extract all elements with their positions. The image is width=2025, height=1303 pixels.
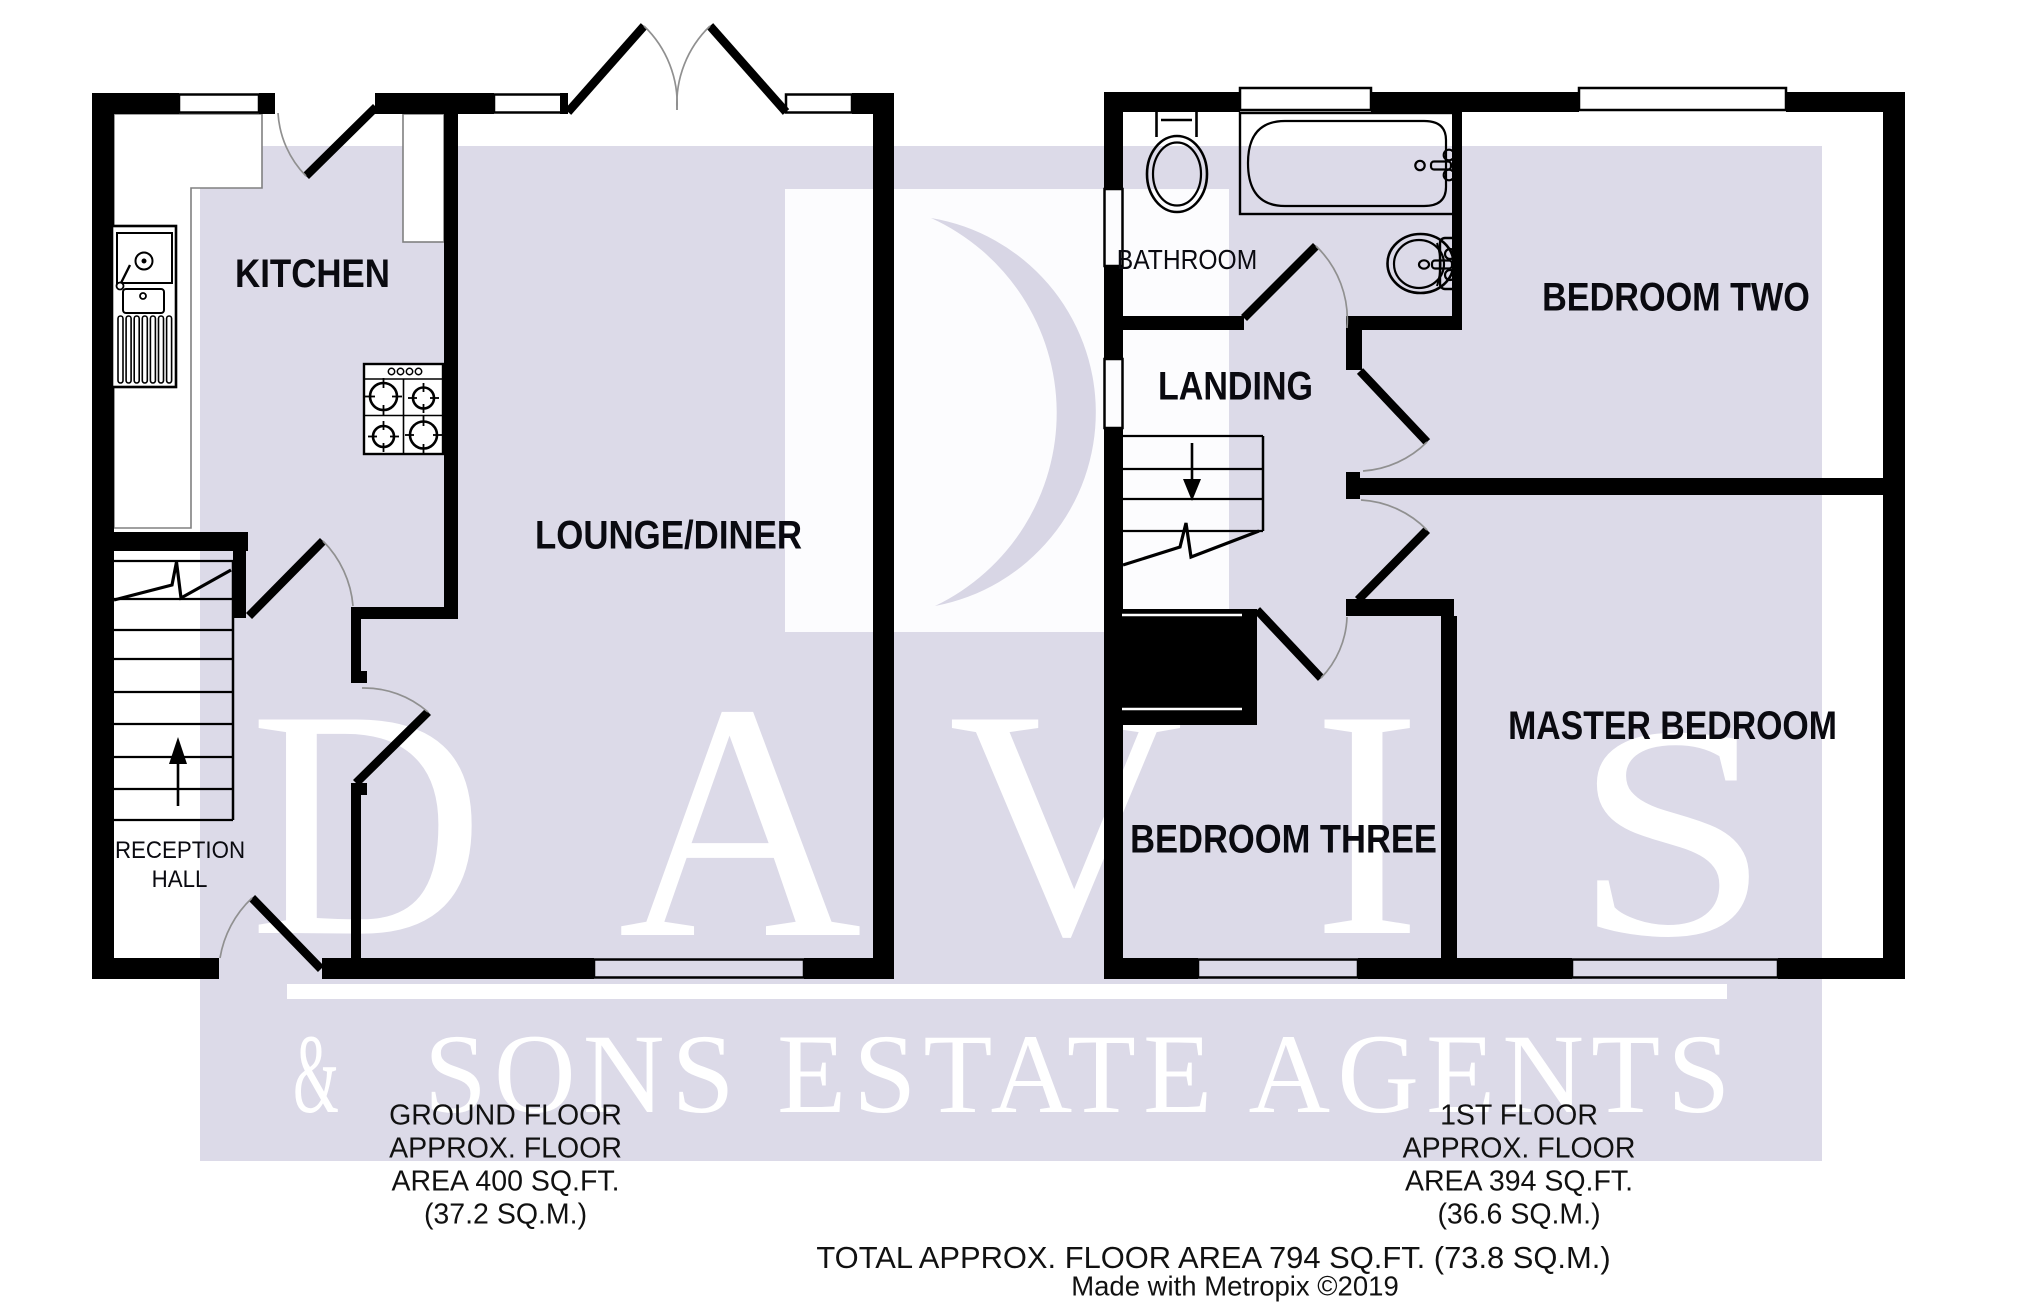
svg-text:(36.6 SQ.M.): (36.6 SQ.M.) xyxy=(1437,1198,1600,1230)
svg-text:BEDROOM THREE: BEDROOM THREE xyxy=(1130,816,1437,861)
svg-text:AREA 394 SQ.FT.: AREA 394 SQ.FT. xyxy=(1405,1165,1633,1197)
svg-text:APPROX. FLOOR: APPROX. FLOOR xyxy=(1403,1132,1636,1164)
svg-text:LOUNGE/DINER: LOUNGE/DINER xyxy=(535,512,802,557)
svg-text:AREA 400 SQ.FT.: AREA 400 SQ.FT. xyxy=(391,1165,619,1197)
svg-text:BEDROOM TWO: BEDROOM TWO xyxy=(1542,274,1810,319)
svg-text:1ST FLOOR: 1ST FLOOR xyxy=(1440,1099,1598,1131)
svg-text:APPROX. FLOOR: APPROX. FLOOR xyxy=(389,1132,622,1164)
svg-text:HALL: HALL xyxy=(152,865,208,892)
svg-text:LANDING: LANDING xyxy=(1158,363,1313,408)
svg-text:(37.2 SQ.M.): (37.2 SQ.M.) xyxy=(424,1198,587,1230)
svg-text:D: D xyxy=(249,642,484,1004)
svg-text:Made with Metropix ©2019: Made with Metropix ©2019 xyxy=(1071,1271,1399,1302)
svg-text:RECEPTION: RECEPTION xyxy=(115,836,245,863)
svg-text:GROUND FLOOR: GROUND FLOOR xyxy=(389,1099,622,1131)
svg-text:BATHROOM: BATHROOM xyxy=(1117,244,1257,276)
svg-text:KITCHEN: KITCHEN xyxy=(235,251,390,296)
svg-text:A: A xyxy=(618,635,862,1009)
svg-text:&: & xyxy=(293,1013,339,1137)
svg-text:MASTER BEDROOM: MASTER BEDROOM xyxy=(1508,702,1837,747)
